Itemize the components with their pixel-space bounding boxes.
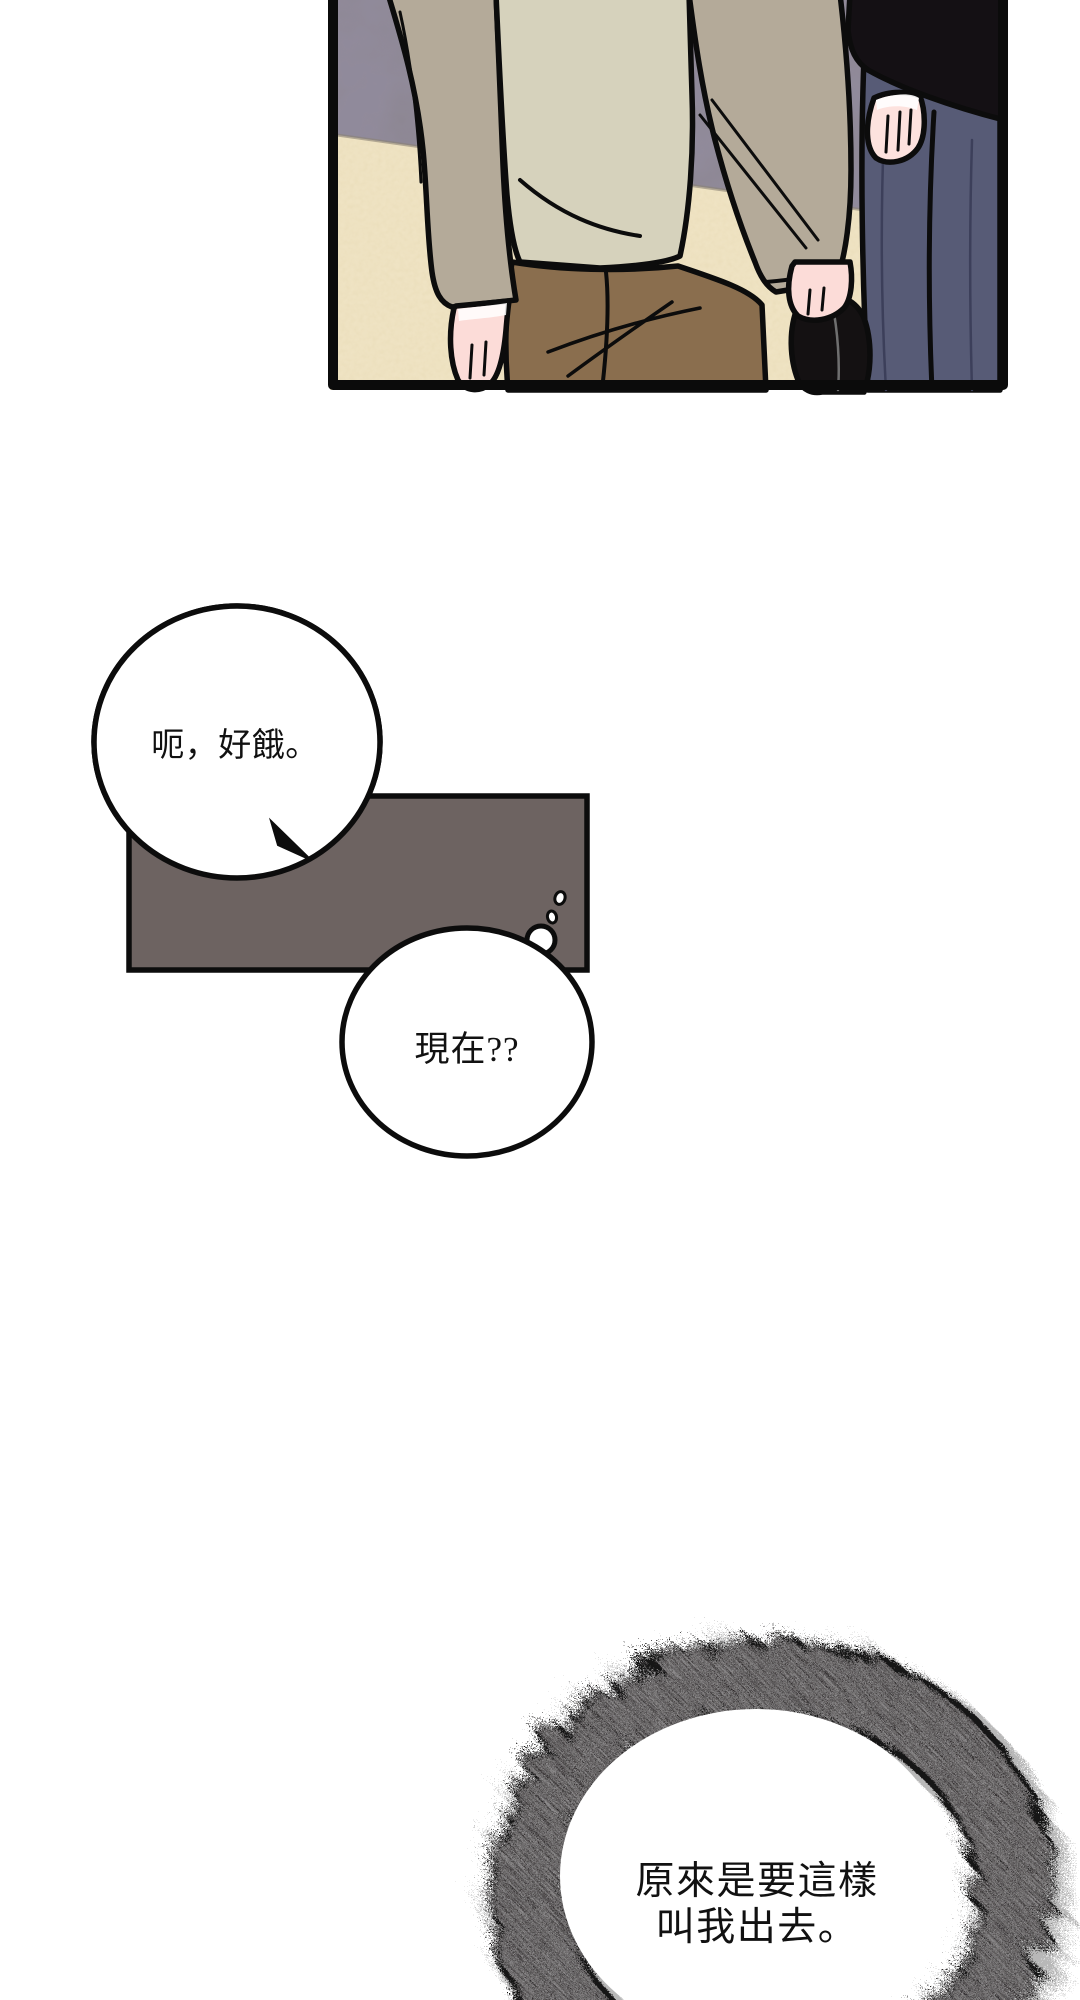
right-figure [848,0,1004,390]
burst-text: 原來是要這樣 叫我出去。 [557,1859,957,1951]
left-figure [388,0,870,393]
left-figure-shirt [496,0,693,268]
left-figure-hand-right [789,262,852,320]
burst-text-line-1: 原來是要這樣 [557,1859,957,1905]
speech-bubble-2-text: 現在?? [347,1021,587,1072]
middle-section [94,606,592,1156]
top-panel [330,0,1004,393]
comic-artwork [0,0,1080,2000]
speech-bubble-1-text: 呃，好餓。 [112,718,358,766]
burst-text-line-2: 叫我出去。 [557,1905,957,1951]
comic-page: 呃，好餓。 現在?? 原來是要這樣 叫我出去。 [0,0,1080,2000]
droplet-icon-2 [546,910,557,924]
